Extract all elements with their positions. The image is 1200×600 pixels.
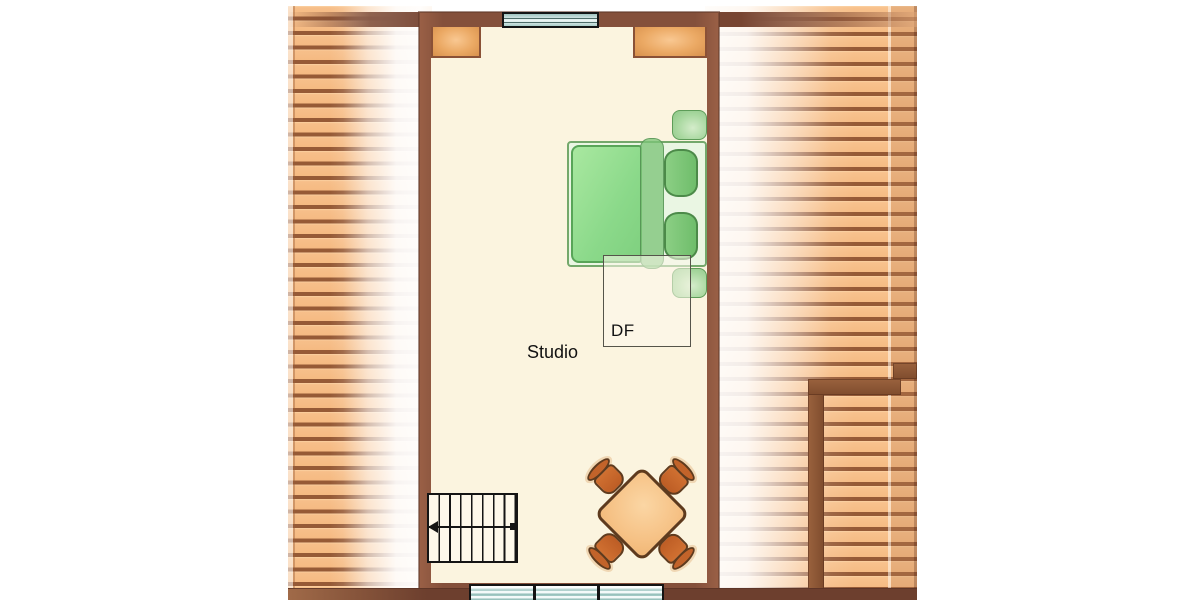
bed-headboard-cushion-top: [672, 110, 707, 140]
window-top: [502, 12, 599, 28]
deck-left: [288, 6, 432, 600]
deck-railing-vertical: [808, 379, 824, 600]
staircase: [427, 493, 518, 563]
window-pane: [536, 586, 598, 600]
dormer-nook-left: [431, 27, 481, 58]
bed-pillow-top: [664, 149, 698, 197]
dormer-nook-right: [633, 27, 707, 58]
window-pane: [471, 586, 533, 600]
window-bottom: [469, 584, 664, 600]
deck-left-light-wash: [288, 6, 432, 600]
stair-direction-line: [429, 526, 516, 528]
bed-blanket: [571, 145, 642, 263]
df-area: DF: [603, 255, 691, 347]
studio-label: Studio: [505, 342, 600, 363]
stair-arrow-icon: [428, 521, 438, 533]
bed-pillow-bottom: [664, 212, 698, 260]
deck-railing-edge-segment: [893, 363, 917, 379]
bed-runner: [640, 138, 664, 269]
deck-railing-horizontal: [808, 379, 901, 395]
stair-start-marker: [510, 523, 517, 530]
df-label: DF: [611, 321, 635, 341]
window-pane: [600, 586, 662, 600]
floor-plan-canvas: DF Studio: [0, 0, 1200, 600]
